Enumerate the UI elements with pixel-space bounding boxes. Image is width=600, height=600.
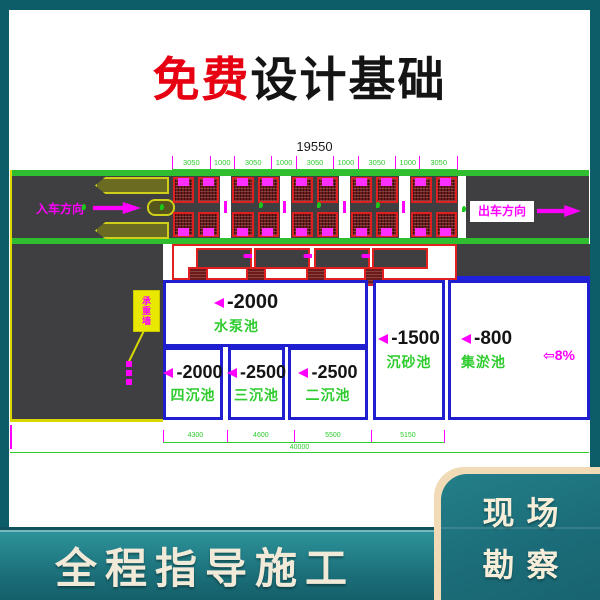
foundation-block (376, 212, 397, 238)
wash-bay (291, 176, 339, 238)
pool-pump: -2000 水泵池 (163, 280, 368, 347)
slope-arrow-icon: ⇦ (543, 347, 555, 363)
callout-box: 承重墙 (133, 290, 160, 332)
flow-arrow-icon (361, 254, 370, 258)
foundation-block (411, 212, 432, 238)
dim-segment: 1000 (271, 156, 295, 169)
foundation-block (258, 177, 279, 203)
bay-wall (399, 176, 410, 238)
sump-box (372, 248, 428, 269)
promo-image: 免费设计基础 19550 3050 1000 3050 1000 3050 10… (0, 0, 600, 600)
foundation-block (173, 177, 194, 203)
flow-arrow-icon (303, 254, 312, 258)
pool-name: 水泵池 (214, 316, 259, 336)
dim-segment: 4600 (227, 430, 294, 442)
depth-marker-icon (378, 334, 388, 344)
dim-segment: 1000 (333, 156, 357, 169)
title-rest: 设计基础 (251, 53, 447, 106)
overall-dimension-label: 40000 (287, 444, 312, 451)
exit-direction-label: 出车方向 (470, 201, 534, 222)
corner-badge: 现场 勘察 (434, 467, 600, 600)
pool-name: 三沉池 (234, 385, 279, 405)
pool-name: 二沉池 (306, 385, 351, 405)
dim-segment: 3050 (172, 156, 210, 169)
dimension-tick (10, 425, 12, 449)
green-mark (376, 202, 380, 208)
foundation-block (292, 177, 313, 203)
pool-depth: -2000 (227, 291, 278, 314)
slope-label: ⇦8% (543, 347, 575, 364)
green-mark (160, 204, 164, 210)
pool-name: 四沉池 (171, 385, 216, 405)
pool-sink3: -2500 三沉池 (228, 347, 285, 420)
pool-name: 集淤池 (461, 352, 506, 372)
drawing-card: 免费设计基础 19550 3050 1000 3050 1000 3050 10… (9, 10, 590, 527)
callout-label: 承重墙 (140, 296, 153, 326)
vertical-dim-text (126, 358, 132, 385)
corner-badge-line2: 勘察 (470, 540, 570, 586)
depth-marker-icon (461, 334, 471, 344)
drain-channel (172, 244, 457, 280)
entry-direction-label: 入车方向 (36, 200, 84, 217)
foundation-block (376, 177, 397, 203)
dim-segment: 3050 (296, 156, 334, 169)
wash-bay (410, 176, 458, 238)
pool-depth: -2000 (176, 362, 222, 383)
page-title: 免费设计基础 (9, 50, 590, 110)
foundation-block (411, 177, 432, 203)
pool-depth: -800 (474, 328, 512, 350)
corner-badge-panel: 现场 勘察 (441, 474, 600, 600)
overall-dimension-line: 40000 (10, 452, 589, 453)
foundation-block (232, 177, 253, 203)
traffic-island (95, 222, 169, 239)
dim-segment: 1000 (395, 156, 419, 169)
pool-depth: -2500 (311, 362, 357, 383)
pavement-edge-line (10, 170, 12, 422)
depth-marker-icon (227, 368, 237, 378)
bay-wall (280, 176, 291, 238)
bay-wall (220, 176, 231, 238)
dim-segment: 3050 (419, 156, 457, 169)
pool-sand: -1500 沉砂池 (373, 280, 445, 420)
foundation-block (232, 212, 253, 238)
green-mark (317, 202, 321, 208)
pool-depth: -1500 (391, 328, 440, 350)
foundation-block (258, 212, 279, 238)
depth-marker-icon (298, 368, 308, 378)
pool-depth: -2500 (240, 362, 286, 383)
depth-marker-icon (214, 298, 224, 308)
green-mark (462, 206, 466, 212)
foundation-block (292, 212, 313, 238)
wash-bay (172, 176, 220, 238)
total-dimension-label: 19550 (172, 139, 457, 154)
exit-arrow-icon (537, 205, 581, 217)
title-highlight: 免费 (153, 53, 251, 106)
bottom-dimension-chain: 4300 4600 5500 5150 (163, 430, 445, 443)
pool-silt: -800 集淤池 ⇦8% (448, 280, 590, 420)
wash-bay (231, 176, 279, 238)
dim-segment: 5150 (371, 430, 444, 442)
wash-bay (350, 176, 398, 238)
foundation-block (317, 212, 338, 238)
dim-segment: 4300 (163, 430, 227, 442)
road-shoulder (457, 244, 590, 280)
pool-sink4: -2000 四沉池 (163, 347, 223, 420)
pool-sink2: -2500 二沉池 (288, 347, 368, 420)
green-mark (82, 204, 86, 210)
foundation-block (436, 212, 457, 238)
foundation-block (351, 212, 372, 238)
dim-segment: 3050 (234, 156, 272, 169)
depth-marker-icon (163, 368, 173, 378)
foundation-block (198, 177, 219, 203)
foundation-block (351, 177, 372, 203)
dim-segment: 5500 (294, 430, 371, 442)
footer-slogan: 全程指导施工 (55, 535, 355, 596)
dim-segment: 3050 (358, 156, 396, 169)
sump-box (196, 248, 252, 269)
foundation-block (173, 212, 194, 238)
green-mark (259, 202, 263, 208)
foundation-block (317, 177, 338, 203)
dim-segment: 1000 (210, 156, 234, 169)
wash-bays (172, 176, 458, 238)
flow-arrow-icon (243, 254, 252, 258)
foundation-block (198, 212, 219, 238)
dimension-chain: 3050 1000 3050 1000 3050 1000 3050 1000 … (172, 156, 458, 170)
entry-arrow-icon (93, 202, 141, 214)
pool-name: 沉砂池 (387, 352, 432, 372)
side-pavement (10, 244, 163, 422)
sump-box (254, 248, 310, 269)
corner-badge-line1: 现场 (470, 488, 570, 534)
traffic-island (95, 177, 169, 194)
roadway: 入车方向 (10, 170, 589, 244)
foundation-block (436, 177, 457, 203)
sump-box (314, 248, 370, 269)
bay-wall (339, 176, 350, 238)
